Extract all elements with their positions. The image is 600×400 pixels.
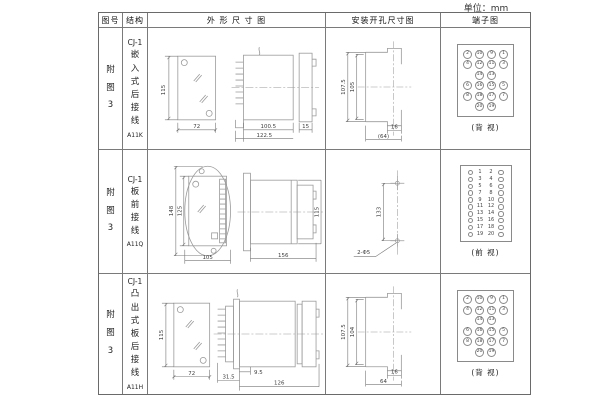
terminal-circle: 20	[475, 102, 484, 111]
terminal-slot: 11	[486, 60, 497, 70]
dim-label: 107.5	[341, 324, 347, 340]
terminal-empty-slot	[462, 316, 473, 326]
terminal-row: 616155	[462, 327, 509, 337]
terminal-circle	[468, 232, 474, 238]
terminal-cell-row3: 2109141211314136161558181772019 (背 视)	[441, 274, 530, 394]
fig-number-label: 附图3	[106, 307, 115, 361]
dim-label: 115	[161, 85, 167, 95]
terminal-slot: 20	[474, 348, 485, 358]
terminal-slot: 3	[498, 60, 509, 70]
terminal-number: 13	[476, 211, 484, 216]
terminal-slot: 2	[462, 49, 473, 59]
terminal-number: 11	[476, 204, 484, 209]
terminal-circle: 10	[475, 295, 484, 304]
relay-side-view	[237, 173, 323, 251]
terminal-circle	[468, 170, 474, 176]
install-cell-row2: 133 2-Φ5	[326, 150, 441, 274]
terminal-circle	[498, 204, 504, 210]
terminal-circle: 12	[475, 306, 484, 315]
header-install-hole-dimensions: 安装开孔尺寸图	[326, 13, 441, 28]
terminal-circle: 5	[499, 327, 508, 336]
dimension-labels: 107.5 105 16 (64)	[341, 79, 399, 140]
dim-label: 64	[380, 379, 387, 385]
terminal-circle: 11	[487, 306, 496, 315]
terminal-circle: 2	[463, 295, 472, 304]
install-hole-drawing-row2: 133 2-Φ5	[326, 150, 440, 273]
terminal-slot: 4	[462, 60, 473, 70]
terminal-circle: 13	[487, 71, 496, 80]
terminal-cell-row1: 2109141211314136161558181772019 (背 视)	[441, 28, 530, 150]
terminal-circle	[498, 184, 504, 190]
relay-front-view	[174, 303, 210, 367]
terminal-number: 17	[476, 225, 484, 230]
dim-label: 72	[193, 124, 200, 130]
terminal-number: 14	[487, 211, 495, 216]
dimension-lines	[165, 56, 312, 142]
terminal-slot: 19	[486, 102, 497, 112]
terminal-circle	[498, 211, 504, 217]
terminal-circle: 14	[475, 316, 484, 325]
terminal-circle	[498, 218, 504, 224]
terminal-empty-slot	[498, 316, 509, 326]
terminal-row: 1413	[462, 70, 509, 80]
terminal-circle: 7	[499, 337, 508, 346]
dim-label: 126	[274, 380, 285, 386]
terminal-slot: 11	[486, 305, 497, 315]
terminal-circle	[498, 232, 504, 238]
terminal-circle: 5	[499, 81, 508, 90]
terminal-circle	[498, 197, 504, 203]
install-hole-drawing-row3: 107.5 104 16 64	[326, 275, 440, 394]
dimension-labels: 107.5 104 16 64	[341, 324, 399, 385]
terminal-circle: 19	[487, 348, 496, 357]
terminal-circle	[498, 190, 504, 196]
dim-label: 16	[391, 369, 398, 375]
terminal-circle	[468, 211, 474, 217]
terminal-number: 16	[487, 218, 495, 223]
relay-side-view	[214, 289, 323, 369]
terminal-slot: 17	[486, 337, 497, 347]
terminal-row: 412113	[462, 305, 509, 315]
dim-label: 125	[177, 206, 183, 216]
terminal-slot: 10	[474, 49, 485, 59]
model-label: A11K	[127, 132, 143, 139]
terminal-caption: (背 视)	[471, 367, 499, 378]
terminal-circle: 3	[499, 306, 508, 315]
dim-label: 100.5	[261, 124, 277, 130]
terminal-circle: 9	[487, 295, 496, 304]
terminal-slot: 10	[474, 295, 485, 305]
terminal-empty-slot	[462, 70, 473, 80]
terminal-number: 18	[487, 225, 495, 230]
terminal-circle	[468, 190, 474, 196]
terminal-row: 2019	[462, 348, 509, 358]
relay-front-view	[178, 56, 216, 120]
dim-label: 115	[159, 329, 165, 339]
terminal-number: 9	[476, 198, 484, 203]
terminal-number: 6	[487, 184, 495, 189]
terminal-circle	[468, 204, 474, 210]
terminal-number: 15	[476, 218, 484, 223]
terminal-row: 910	[468, 197, 504, 203]
terminal-circle: 12	[475, 60, 484, 69]
terminal-slot: 5	[498, 81, 509, 91]
dim-label: 156	[278, 253, 289, 259]
dim-label: 2-Φ5	[357, 250, 370, 256]
terminal-slot: 9	[486, 295, 497, 305]
terminal-slot: 6	[462, 327, 473, 337]
terminal-number: 20	[487, 232, 495, 237]
terminal-empty-slot	[462, 102, 473, 112]
terminal-row: 34	[468, 177, 504, 183]
terminal-slot: 20	[474, 102, 485, 112]
dim-label: 104	[350, 326, 356, 337]
dim-label: 105	[350, 82, 356, 92]
terminal-caption: (背 视)	[471, 122, 499, 133]
terminal-circle: 20	[475, 348, 484, 357]
install-hole-drawing-row1: 107.5 105 16 (64)	[326, 28, 440, 149]
terminal-circle	[498, 170, 504, 176]
outline-cell-row2: 148 125 105 156 115	[148, 150, 326, 274]
terminal-slot: 8	[462, 337, 473, 347]
terminal-row: 616155	[462, 81, 509, 91]
terminal-row: 1516	[468, 218, 504, 224]
terminal-number: 2	[487, 170, 495, 175]
terminal-diagram-row1: 2109141211314136161558181772019 (背 视)	[457, 44, 514, 133]
terminal-row: 56	[468, 184, 504, 190]
terminal-circle	[468, 197, 474, 203]
terminal-diagram-row2: 1234567891011121314151617181920 (前 视)	[460, 165, 512, 259]
structure-label: 板前接线	[131, 186, 140, 239]
dimension-labels: 148 125 105 156 115	[169, 205, 321, 261]
dimension-lines	[354, 183, 397, 256]
terminal-circle	[498, 177, 504, 183]
terminal-block: 2109141211314136161558181772019	[457, 44, 514, 117]
terminal-circle: 6	[463, 81, 472, 90]
relay-front-view	[185, 166, 231, 255]
terminal-row: 1413	[462, 316, 509, 326]
terminal-circle: 9	[487, 50, 496, 59]
install-cell-row3: 107.5 104 16 64	[326, 274, 441, 394]
terminal-row: 21091	[462, 49, 509, 59]
fig-number-label: 附图3	[106, 185, 115, 239]
terminal-slot: 2	[462, 295, 473, 305]
header-terminal-diagram: 端子图	[441, 13, 530, 28]
terminal-empty-slot	[498, 70, 509, 80]
terminal-circle	[468, 225, 474, 231]
spec-table: 图号 结构 外 形 尺 寸 图 安装开孔尺寸图 端子图 附图3 CJ-1 嵌入式…	[98, 12, 531, 395]
terminal-slot: 17	[486, 92, 497, 102]
terminal-circle: 6	[463, 327, 472, 336]
terminal-slot: 8	[462, 92, 473, 102]
dim-label: 16	[391, 125, 398, 131]
dimension-labels: 133 2-Φ5	[357, 206, 382, 256]
terminal-circle: 18	[475, 92, 484, 101]
fig-number-label: 附图3	[106, 62, 115, 116]
terminal-circle: 10	[475, 50, 484, 59]
terminal-slot: 19	[486, 348, 497, 358]
fig-number-cell-row1: 附图3	[99, 28, 123, 150]
terminal-row: 1112	[468, 204, 504, 210]
terminal-slot: 4	[462, 305, 473, 315]
header-fig-number: 图号	[99, 13, 123, 28]
terminal-number: 3	[476, 177, 484, 182]
terminal-empty-slot	[498, 348, 509, 358]
terminal-slot: 1	[498, 295, 509, 305]
terminal-row: 1718	[468, 225, 504, 231]
terminal-row: 818177	[462, 92, 509, 102]
terminal-slot: 9	[486, 49, 497, 59]
terminal-slot: 15	[486, 81, 497, 91]
structure-cell-row1: CJ-1 嵌入式后接线 A11K	[123, 28, 148, 150]
terminal-circle: 19	[487, 102, 496, 111]
model-label: A11H	[127, 384, 143, 391]
relay-side-view	[232, 47, 320, 128]
dim-label: (64)	[378, 134, 389, 140]
dim-label: 148	[169, 205, 175, 216]
terminal-number: 4	[487, 177, 495, 182]
dim-label: 72	[188, 370, 195, 376]
terminal-slot: 6	[462, 81, 473, 91]
dim-label: 133	[377, 206, 383, 217]
terminal-slot: 18	[474, 92, 485, 102]
terminal-circle: 17	[487, 92, 496, 101]
terminal-empty-slot	[462, 348, 473, 358]
terminal-circle: 16	[475, 81, 484, 90]
header-outline-dimensions: 外 形 尺 寸 图	[148, 13, 326, 28]
terminal-row: 12	[468, 170, 504, 176]
install-cell-row1: 107.5 105 16 (64)	[326, 28, 441, 150]
dimension-labels: 115 72 31.5 9.5 126	[159, 329, 285, 386]
terminal-circle: 16	[475, 327, 484, 336]
dim-label: 15	[302, 124, 309, 130]
terminal-slot: 16	[474, 81, 485, 91]
structure-label: 嵌入式后接线	[131, 49, 140, 128]
terminal-circle: 7	[499, 92, 508, 101]
terminal-circle: 4	[463, 60, 472, 69]
terminal-block: 1234567891011121314151617181920	[460, 165, 512, 243]
terminal-caption: (前 视)	[471, 247, 499, 258]
terminal-circle: 11	[487, 60, 496, 69]
structure-label: 凸出式板后接线	[131, 288, 140, 380]
terminal-slot: 14	[474, 70, 485, 80]
terminal-circle: 18	[475, 337, 484, 346]
terminal-circle: 4	[463, 306, 472, 315]
terminal-circle: 1	[499, 295, 508, 304]
terminal-slot: 18	[474, 337, 485, 347]
terminal-row: 78	[468, 190, 504, 196]
terminal-slot: 13	[486, 316, 497, 326]
terminal-circle	[498, 225, 504, 231]
header-structure: 结构	[123, 13, 148, 28]
terminal-circle: 15	[487, 81, 496, 90]
model-label: A11Q	[127, 241, 143, 248]
terminal-block: 2109141211314136161558181772019	[457, 290, 514, 363]
terminal-number: 10	[487, 198, 495, 203]
series-label: CJ-1	[128, 175, 143, 184]
outline-drawing-row2: 148 125 105 156 115	[148, 150, 325, 273]
fig-number-cell-row2: 附图3	[99, 150, 123, 274]
terminal-slot: 13	[486, 70, 497, 80]
terminal-circle: 14	[475, 71, 484, 80]
dim-label: 31.5	[222, 374, 234, 380]
terminal-circle	[468, 218, 474, 224]
series-label: CJ-1	[128, 38, 143, 47]
terminal-slot: 12	[474, 60, 485, 70]
terminal-slot: 3	[498, 305, 509, 315]
dim-label: 105	[202, 255, 212, 261]
terminal-row: 818177	[462, 337, 509, 347]
terminal-row: 412113	[462, 60, 509, 70]
terminal-circle: 17	[487, 337, 496, 346]
outline-drawing-row3: 115 72 31.5 9.5 126	[148, 275, 325, 394]
outline-cell-row1: 115 72 100.5 122.5 15	[148, 28, 326, 150]
terminal-diagram-row3: 2109141211314136161558181772019 (背 视)	[457, 290, 514, 379]
terminal-slot: 7	[498, 92, 509, 102]
terminal-number: 12	[487, 204, 495, 209]
terminal-slot: 7	[498, 337, 509, 347]
dim-label: 115	[315, 207, 321, 217]
fig-number-cell-row3: 附图3	[99, 274, 123, 394]
terminal-cell-row2: 1234567891011121314151617181920 (前 视)	[441, 150, 530, 274]
dim-label: 122.5	[257, 133, 273, 139]
terminal-circle: 15	[487, 327, 496, 336]
terminal-slot: 16	[474, 327, 485, 337]
terminal-circle: 2	[463, 50, 472, 59]
series-label: CJ-1	[128, 277, 143, 286]
structure-cell-row2: CJ-1 板前接线 A11Q	[123, 150, 148, 274]
terminal-circle: 8	[463, 92, 472, 101]
terminal-row: 1920	[468, 232, 504, 238]
terminal-slot: 15	[486, 327, 497, 337]
outline-drawing-row1: 115 72 100.5 122.5 15	[148, 28, 325, 149]
terminal-number: 19	[476, 232, 484, 237]
terminal-circle: 13	[487, 316, 496, 325]
terminal-number: 7	[476, 191, 484, 196]
dim-label: 9.5	[254, 369, 263, 375]
structure-cell-row3: CJ-1 凸出式板后接线 A11H	[123, 274, 148, 394]
dim-label: 107.5	[341, 79, 347, 95]
terminal-row: 2019	[462, 102, 509, 112]
terminal-slot: 14	[474, 316, 485, 326]
terminal-circle	[468, 177, 474, 183]
terminal-slot: 12	[474, 305, 485, 315]
terminal-circle: 8	[463, 337, 472, 346]
terminal-slot: 5	[498, 327, 509, 337]
terminal-number: 8	[487, 191, 495, 196]
terminal-circle: 3	[499, 60, 508, 69]
dimension-labels: 115 72 100.5 122.5 15	[161, 85, 309, 139]
terminal-row: 21091	[462, 295, 509, 305]
terminal-number: 1	[476, 170, 484, 175]
terminal-circle: 1	[499, 50, 508, 59]
terminal-number: 5	[476, 184, 484, 189]
terminal-empty-slot	[498, 102, 509, 112]
terminal-circle	[468, 184, 474, 190]
outline-cell-row3: 115 72 31.5 9.5 126	[148, 274, 326, 394]
terminal-row: 1314	[468, 211, 504, 217]
terminal-slot: 1	[498, 49, 509, 59]
